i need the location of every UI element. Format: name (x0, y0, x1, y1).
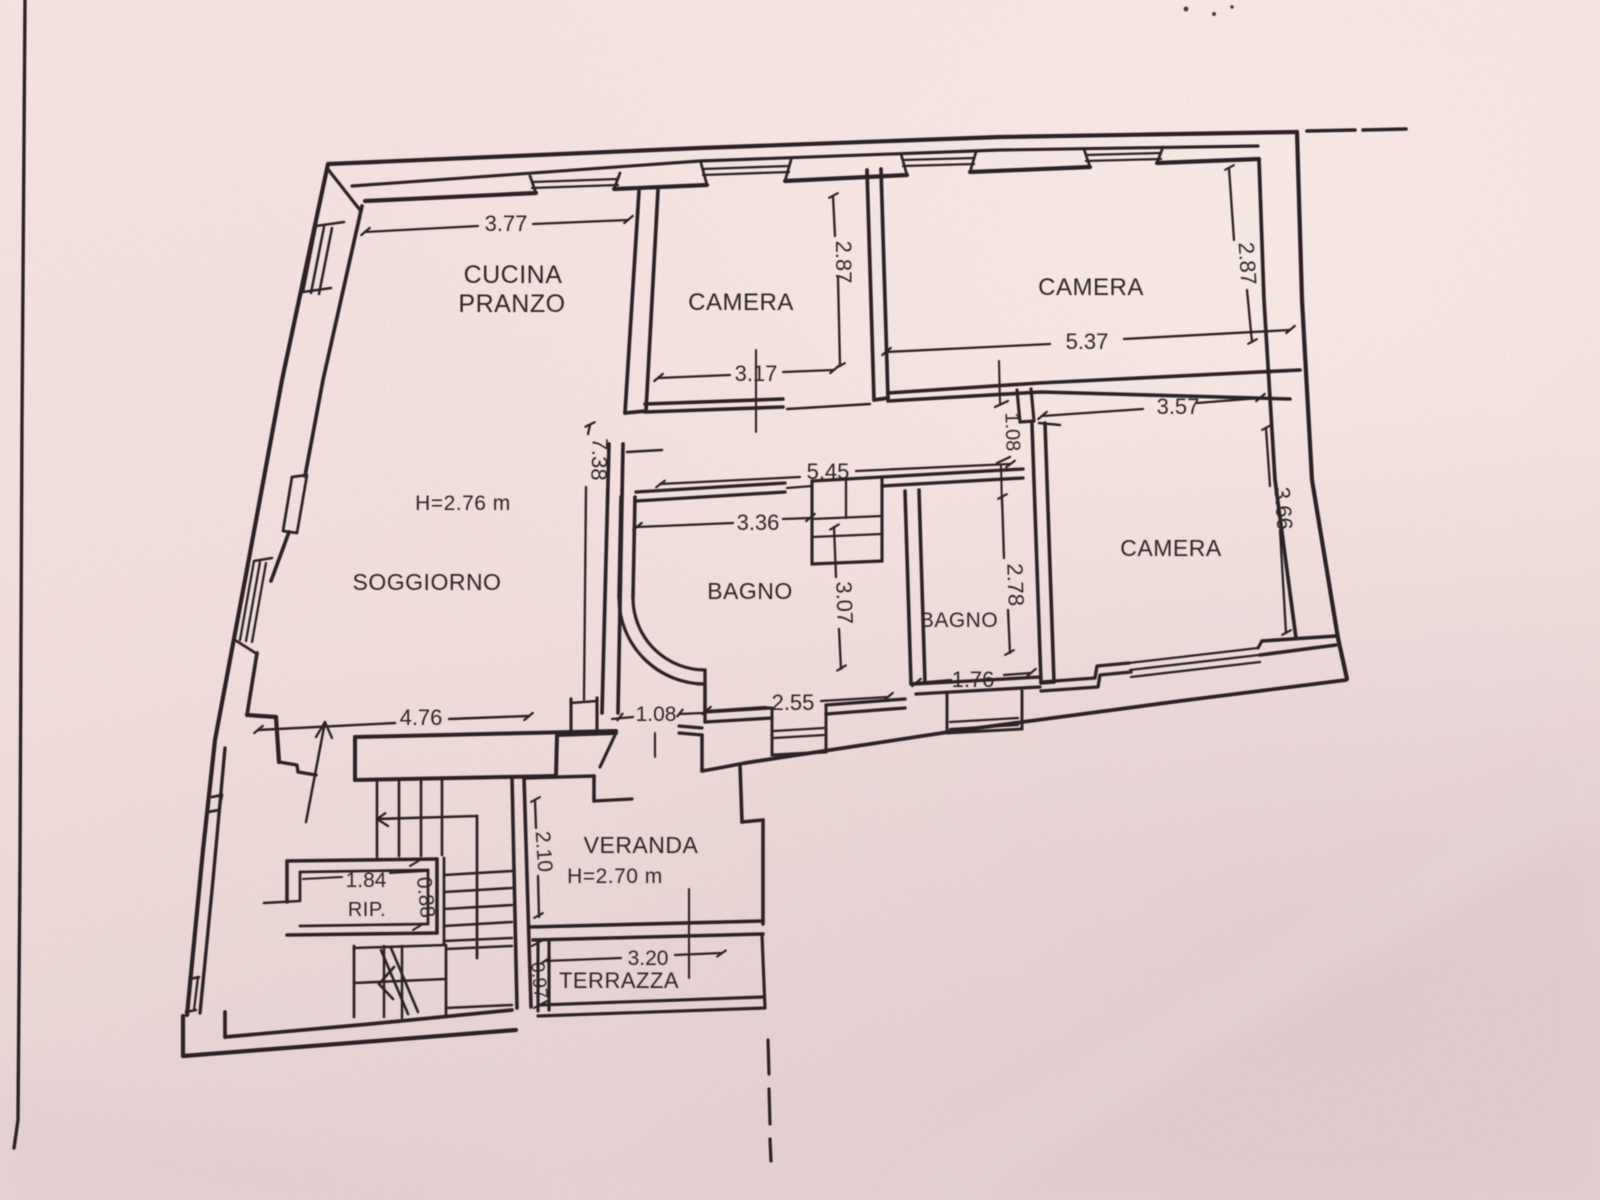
svg-text:1.76: 1.76 (952, 667, 995, 692)
svg-text:BAGNO: BAGNO (920, 609, 998, 632)
svg-text:PRANZO: PRANZO (458, 290, 565, 318)
svg-text:RIP.: RIP. (348, 899, 386, 921)
svg-text:CAMERA: CAMERA (1038, 274, 1144, 301)
svg-text:2.78: 2.78 (1002, 563, 1028, 607)
svg-text:BAGNO: BAGNO (707, 578, 793, 604)
svg-text:3.77: 3.77 (485, 211, 528, 236)
svg-text:TERRAZZA: TERRAZZA (559, 968, 679, 993)
svg-text:3.36: 3.36 (737, 510, 780, 535)
svg-text:H=2.70 m: H=2.70 m (567, 865, 663, 888)
svg-text:5.37: 5.37 (1066, 329, 1109, 354)
svg-text:SOGGIORNO: SOGGIORNO (353, 569, 502, 595)
svg-text:2.55: 2.55 (772, 690, 815, 715)
svg-text:CAMERA: CAMERA (688, 289, 794, 316)
svg-text:1.84: 1.84 (346, 869, 387, 892)
svg-text:4.76: 4.76 (400, 705, 443, 730)
svg-text:0.97: 0.97 (526, 961, 551, 1000)
svg-text:CUCINA: CUCINA (464, 261, 563, 289)
svg-text:H=2.76 m: H=2.76 m (415, 492, 511, 515)
svg-text:5.45: 5.45 (807, 459, 850, 484)
svg-text:1.08: 1.08 (1000, 412, 1023, 452)
svg-text:VERANDA: VERANDA (584, 832, 699, 858)
svg-text:CAMERA: CAMERA (1120, 535, 1222, 561)
svg-text:3.57: 3.57 (1157, 394, 1200, 419)
svg-text:1.08: 1.08 (636, 703, 677, 726)
svg-text:2.87: 2.87 (1234, 241, 1262, 285)
svg-text:7.38: 7.38 (586, 437, 612, 481)
svg-text:2.10: 2.10 (531, 830, 557, 872)
svg-text:3.20: 3.20 (628, 947, 669, 970)
svg-text:3.07: 3.07 (831, 581, 857, 625)
svg-text:3.17: 3.17 (735, 361, 778, 386)
svg-text:0.88: 0.88 (412, 876, 439, 919)
svg-text:3.66: 3.66 (1270, 486, 1298, 530)
svg-text:2.87: 2.87 (831, 241, 856, 284)
